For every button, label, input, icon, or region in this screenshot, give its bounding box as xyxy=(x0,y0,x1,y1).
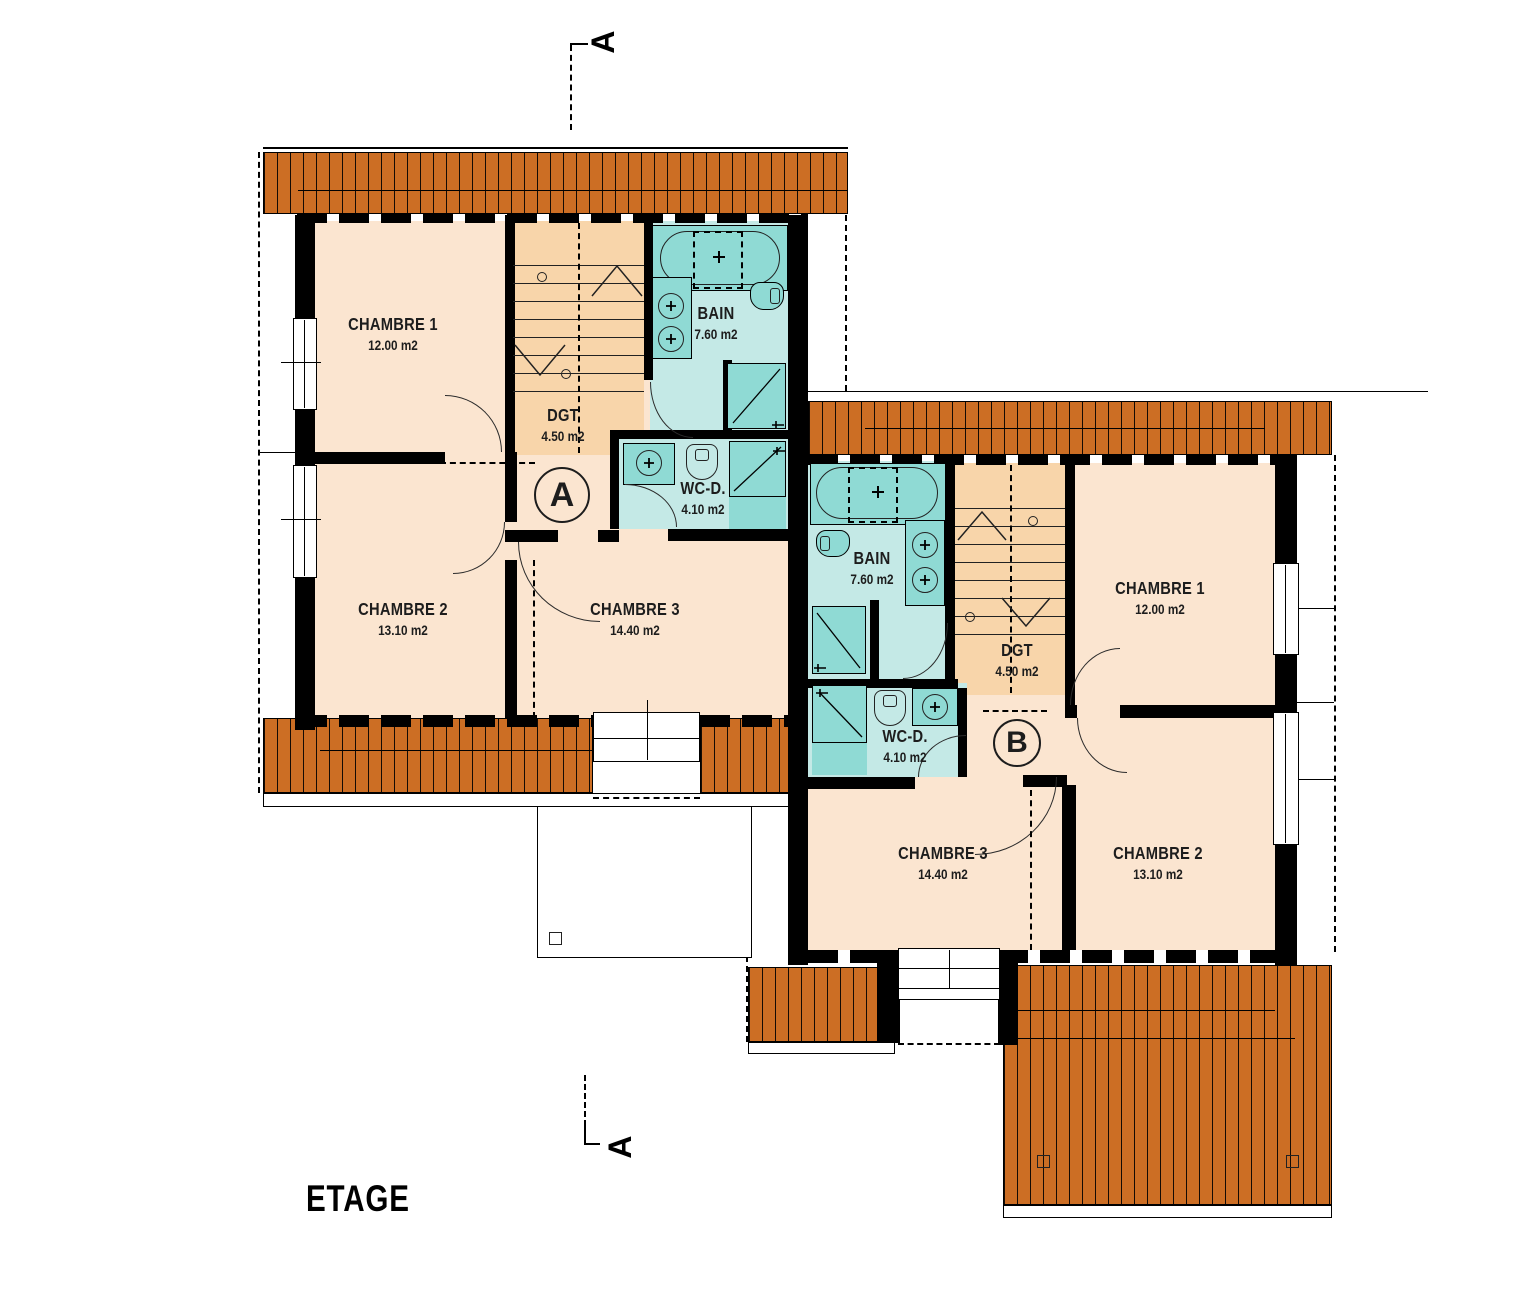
wall xyxy=(877,950,900,1043)
terrace-post xyxy=(1286,1155,1299,1168)
wall xyxy=(295,215,315,318)
wall xyxy=(870,600,879,679)
room-label-bain-b: BAIN 7.60 m2 xyxy=(805,549,939,588)
stair-newel-post xyxy=(1028,516,1038,526)
roof-overhang-outline xyxy=(258,152,260,793)
room-area: 7.60 m2 xyxy=(805,572,939,587)
window xyxy=(293,465,317,578)
wall-axis-tick xyxy=(258,452,297,453)
room-area: 12.00 m2 xyxy=(1093,602,1227,617)
window-axis-tick xyxy=(1299,779,1335,780)
room-name: DGT xyxy=(950,641,1084,660)
room-area: 4.50 m2 xyxy=(496,429,630,444)
window-dashed-line xyxy=(593,797,700,799)
unit-a-roof-top xyxy=(263,152,848,214)
roof-edge-line xyxy=(263,147,848,149)
window-pane-line xyxy=(1285,714,1286,843)
unit-b-roof-bottom-left xyxy=(748,967,878,1042)
room-label-chambre1-b: CHAMBRE 1 12.00 m2 xyxy=(1093,579,1227,618)
room-label-chambre1-a: CHAMBRE 1 12.00 m2 xyxy=(326,315,460,354)
roof-overhang-outline xyxy=(1334,455,1336,952)
gutter-band xyxy=(748,1042,895,1054)
wall xyxy=(668,529,788,541)
room-label-chambre2-a: CHAMBRE 2 13.10 m2 xyxy=(336,600,470,639)
window-axis-tick xyxy=(281,519,321,520)
room-label-chambre3-a: CHAMBRE 3 14.40 m2 xyxy=(568,600,702,639)
wall xyxy=(1065,705,1077,718)
stair-newel-post xyxy=(537,272,547,282)
room-area: 4.50 m2 xyxy=(950,664,1084,679)
room-area: 14.40 m2 xyxy=(568,623,702,638)
window xyxy=(1273,712,1299,845)
room-name: BAIN xyxy=(649,304,783,323)
room-label-wcd-b: WC-D. 4.10 m2 xyxy=(838,727,972,766)
stair-down-arrow xyxy=(1002,598,1050,626)
room-name: CHAMBRE 3 xyxy=(568,600,702,619)
wall-axis-tick xyxy=(1297,702,1334,703)
room-area: 13.10 m2 xyxy=(1091,867,1225,882)
wall xyxy=(505,530,558,542)
room-area: 7.60 m2 xyxy=(649,327,783,342)
door-dashed-line xyxy=(533,560,535,718)
room-area: 14.40 m2 xyxy=(876,867,1010,882)
floor-plan: CHAMBRE 1 12.00 m2 CHAMBRE 2 13.10 m2 CH… xyxy=(0,0,1534,1300)
terrace-post xyxy=(1037,1155,1050,1168)
wall xyxy=(295,578,315,730)
balcony-post xyxy=(549,932,562,945)
room-name: CHAMBRE 2 xyxy=(336,600,470,619)
wall xyxy=(998,950,1297,963)
stair-down-arrow xyxy=(515,345,565,375)
room-name: CHAMBRE 1 xyxy=(1093,579,1227,598)
shower-diagonal xyxy=(727,363,786,429)
toilet-tank xyxy=(883,695,897,707)
window xyxy=(1273,563,1299,655)
gutter-band xyxy=(1003,1205,1332,1218)
room-name: DGT xyxy=(496,406,630,425)
room-label-wcd-a: WC-D. 4.10 m2 xyxy=(636,479,770,518)
toilet-tank xyxy=(770,288,780,304)
window-axis-tick xyxy=(647,700,648,760)
wall xyxy=(1120,705,1297,718)
room-name: WC-D. xyxy=(838,727,972,746)
window-dashed-line xyxy=(898,1043,1000,1045)
gutter-band xyxy=(263,793,792,807)
shower-diagonal xyxy=(812,606,866,674)
wall xyxy=(505,560,517,718)
wall xyxy=(297,452,445,464)
section-marker-line xyxy=(584,1143,600,1145)
balcony-outline xyxy=(537,806,752,958)
stair-up-arrow xyxy=(592,266,642,296)
roof-break-line xyxy=(1003,1038,1295,1039)
party-wall xyxy=(788,215,808,965)
page-title: ETAGE xyxy=(306,1178,410,1220)
axis-dashed-line xyxy=(440,462,535,464)
room-name: CHAMBRE 1 xyxy=(326,315,460,334)
wall xyxy=(297,715,593,727)
unit-a-roof-bottom-right xyxy=(700,718,792,793)
unit-a-badge: A xyxy=(534,467,590,523)
roof-overhang-outline xyxy=(845,215,847,391)
section-cut-line xyxy=(570,45,572,130)
stair-newel-post xyxy=(965,612,975,622)
room-label-chambre3-b: CHAMBRE 3 14.40 m2 xyxy=(876,844,1010,883)
axis-dashed-line xyxy=(983,710,1047,712)
room-label-chambre2-b: CHAMBRE 2 13.10 m2 xyxy=(1091,844,1225,883)
room-label-dgt-a: DGT 4.50 m2 xyxy=(496,406,630,445)
section-cut-line xyxy=(584,1075,586,1117)
wall xyxy=(1275,455,1297,563)
wall xyxy=(598,530,619,542)
roof-break-line xyxy=(298,190,848,191)
unit-b-badge: B xyxy=(993,719,1041,767)
roof-edge-line xyxy=(808,391,1428,392)
section-marker-top: A xyxy=(585,24,621,60)
window-pane-line xyxy=(304,467,305,576)
wall xyxy=(1275,845,1297,965)
room-name: CHAMBRE 2 xyxy=(1091,844,1225,863)
wall xyxy=(1275,655,1297,712)
room-area: 4.10 m2 xyxy=(838,750,972,765)
wall xyxy=(700,715,792,727)
room-label-dgt-b: DGT 4.50 m2 xyxy=(950,641,1084,680)
section-marker-bottom: A xyxy=(602,1129,638,1165)
window-axis-tick xyxy=(1299,608,1335,609)
window-pane-line xyxy=(899,988,999,989)
room-name: WC-D. xyxy=(636,479,770,498)
roof-window-dashed-outline xyxy=(848,467,898,523)
wall xyxy=(808,777,915,789)
wall xyxy=(610,430,788,439)
wall xyxy=(610,438,619,529)
wall xyxy=(1062,785,1076,950)
roof-window-dashed-outline xyxy=(693,231,743,289)
roof-break-line xyxy=(320,750,593,751)
toilet-tank xyxy=(695,449,709,461)
window-pane-line xyxy=(304,320,305,408)
wall xyxy=(297,213,808,223)
section-marker-line xyxy=(584,1120,586,1144)
roof-break-line xyxy=(1003,1010,1275,1011)
door-dashed-line xyxy=(1030,790,1032,950)
stair-newel-post xyxy=(561,369,571,379)
room-area: 12.00 m2 xyxy=(326,338,460,353)
room-name: BAIN xyxy=(805,549,939,568)
terrace-roof xyxy=(1003,965,1332,1205)
room-area: 13.10 m2 xyxy=(336,623,470,638)
balcony-edge-line xyxy=(730,957,748,958)
room-name: CHAMBRE 3 xyxy=(876,844,1010,863)
room-area: 4.10 m2 xyxy=(636,502,770,517)
faucet-cross-icon xyxy=(644,458,654,468)
wall xyxy=(998,960,1018,1045)
window xyxy=(293,318,317,410)
window-axis-tick xyxy=(281,362,321,363)
stair-up-arrow xyxy=(958,512,1006,540)
faucet-cross-icon xyxy=(930,702,940,712)
window-axis-tick xyxy=(949,950,950,988)
window-pane-line xyxy=(1285,565,1286,653)
room-label-bain-a: BAIN 7.60 m2 xyxy=(649,304,783,343)
roof-break-line xyxy=(865,428,1265,429)
